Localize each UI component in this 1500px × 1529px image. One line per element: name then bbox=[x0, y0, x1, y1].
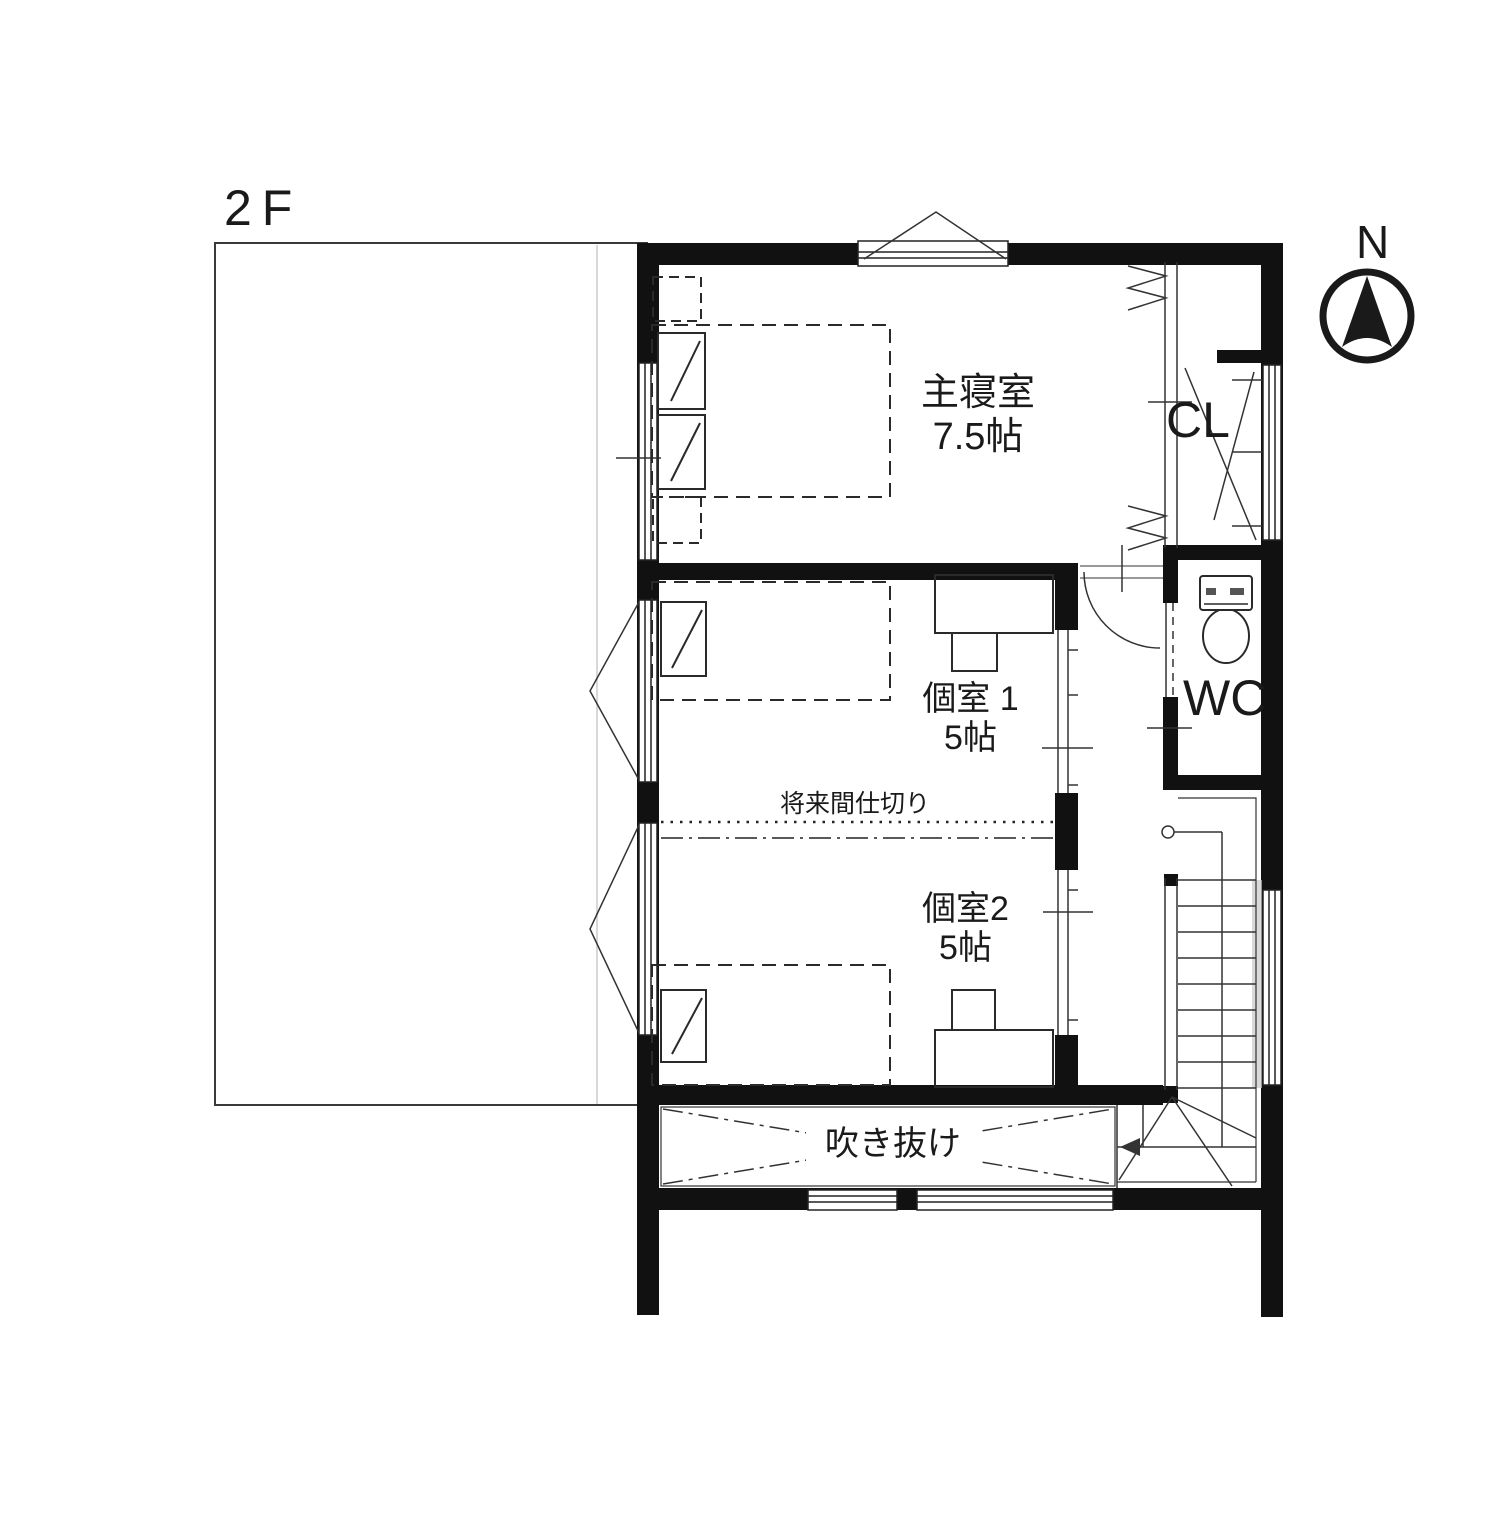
room-label-closet: CL bbox=[1166, 392, 1230, 450]
room1-sliding-door-icon bbox=[1042, 630, 1093, 793]
room-label-room2: 個室2 5帖 bbox=[888, 890, 1043, 968]
room-name: 個室2 bbox=[888, 890, 1043, 929]
closet-east-window-icon bbox=[1263, 365, 1281, 540]
void-label: 吹き抜け bbox=[806, 1124, 980, 1165]
desk-icon bbox=[935, 1030, 1053, 1087]
future-partition-lines bbox=[661, 822, 1053, 838]
compass-icon bbox=[1323, 272, 1411, 360]
master-bedroom-west-window-icon bbox=[616, 363, 661, 560]
stair-handrail-icon bbox=[1165, 878, 1177, 1090]
room-label-master-bedroom: 主寝室 7.5帖 bbox=[898, 372, 1058, 459]
master-bedroom-north-window-icon bbox=[858, 212, 1008, 266]
void-south-window-left-icon bbox=[808, 1190, 897, 1210]
chair-icon bbox=[952, 990, 995, 1030]
pillow-icon bbox=[661, 602, 706, 676]
floor-label: 2F bbox=[224, 180, 302, 238]
room-size: 7.5帖 bbox=[898, 416, 1058, 460]
room-label-room1: 個室 1 5帖 bbox=[893, 680, 1048, 758]
room-label-toilet: WC bbox=[1183, 670, 1266, 728]
double-bed-icon bbox=[652, 325, 890, 497]
void-south-window-right-icon bbox=[917, 1190, 1113, 1210]
hanger-zigzag-bottom-icon bbox=[1128, 506, 1166, 550]
room2-sliding-door-icon bbox=[1043, 870, 1093, 1035]
master-bedroom-furniture bbox=[652, 277, 890, 543]
stair-treads bbox=[1178, 880, 1256, 1088]
chair-icon bbox=[952, 633, 997, 671]
toilet-icon bbox=[1200, 576, 1252, 663]
side-table-icon bbox=[653, 497, 701, 543]
hall-door-swing-icon bbox=[1080, 545, 1163, 648]
room1-west-window-icon bbox=[590, 600, 657, 782]
interior-walls bbox=[637, 545, 1283, 1105]
room2-furniture bbox=[652, 965, 1053, 1087]
room2-west-window-icon bbox=[590, 823, 657, 1035]
stairs bbox=[1117, 798, 1262, 1188]
floor-plan-canvas: 2F 主寝室 7.5帖 CL WC 個室 1 5帖 個室2 5帖 将来間仕切り … bbox=[0, 0, 1500, 1529]
pillow-icon bbox=[661, 990, 706, 1062]
desk-icon bbox=[935, 575, 1053, 633]
single-bed-icon bbox=[652, 582, 890, 700]
future-partition-label: 将来間仕切り bbox=[752, 790, 958, 819]
stair-east-window-icon bbox=[1263, 890, 1281, 1085]
side-table-icon bbox=[653, 277, 701, 321]
room-size: 5帖 bbox=[893, 719, 1048, 758]
compass-north-label: N bbox=[1356, 216, 1389, 269]
hanger-zigzag-top-icon bbox=[1128, 266, 1166, 310]
room-size: 5帖 bbox=[888, 929, 1043, 968]
roof-outline-below bbox=[215, 243, 648, 1105]
room-name: 主寝室 bbox=[898, 372, 1058, 416]
room-name: 個室 1 bbox=[893, 680, 1048, 719]
